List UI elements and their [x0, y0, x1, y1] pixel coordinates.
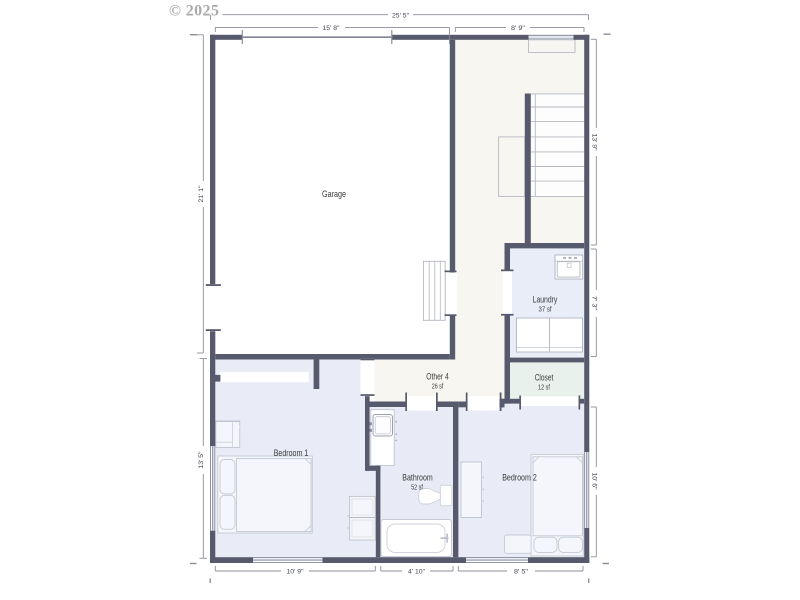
- svg-text:Bathroom: Bathroom: [402, 472, 432, 483]
- svg-text:12 sf: 12 sf: [538, 385, 550, 392]
- svg-text:Laundry: Laundry: [533, 294, 558, 305]
- svg-text:52 sf: 52 sf: [411, 485, 423, 492]
- svg-text:10' 9": 10' 9": [287, 569, 305, 576]
- svg-text:15' 8": 15' 8": [323, 25, 341, 32]
- svg-text:Bedroom 1: Bedroom 1: [274, 448, 309, 459]
- svg-text:13' 5": 13' 5": [198, 451, 205, 469]
- svg-text:Other 4: Other 4: [426, 371, 449, 382]
- svg-text:25' 5": 25' 5": [392, 12, 410, 19]
- svg-text:13' 9": 13' 9": [590, 134, 597, 152]
- svg-text:8' 5": 8' 5": [514, 569, 529, 576]
- svg-text:Closet: Closet: [535, 373, 554, 384]
- svg-text:8' 9": 8' 9": [511, 25, 526, 32]
- svg-text:21' 1": 21' 1": [198, 185, 205, 203]
- svg-text:Garage: Garage: [322, 189, 346, 200]
- svg-text:37 sf: 37 sf: [539, 307, 552, 314]
- svg-text:10' 6": 10' 6": [590, 473, 597, 491]
- svg-text:© 2025: © 2025: [169, 3, 219, 20]
- svg-text:7' 3": 7' 3": [590, 296, 597, 311]
- svg-text:26 sf: 26 sf: [432, 383, 444, 390]
- svg-text:4' 10": 4' 10": [408, 569, 426, 576]
- svg-text:Bedroom 2: Bedroom 2: [502, 472, 537, 483]
